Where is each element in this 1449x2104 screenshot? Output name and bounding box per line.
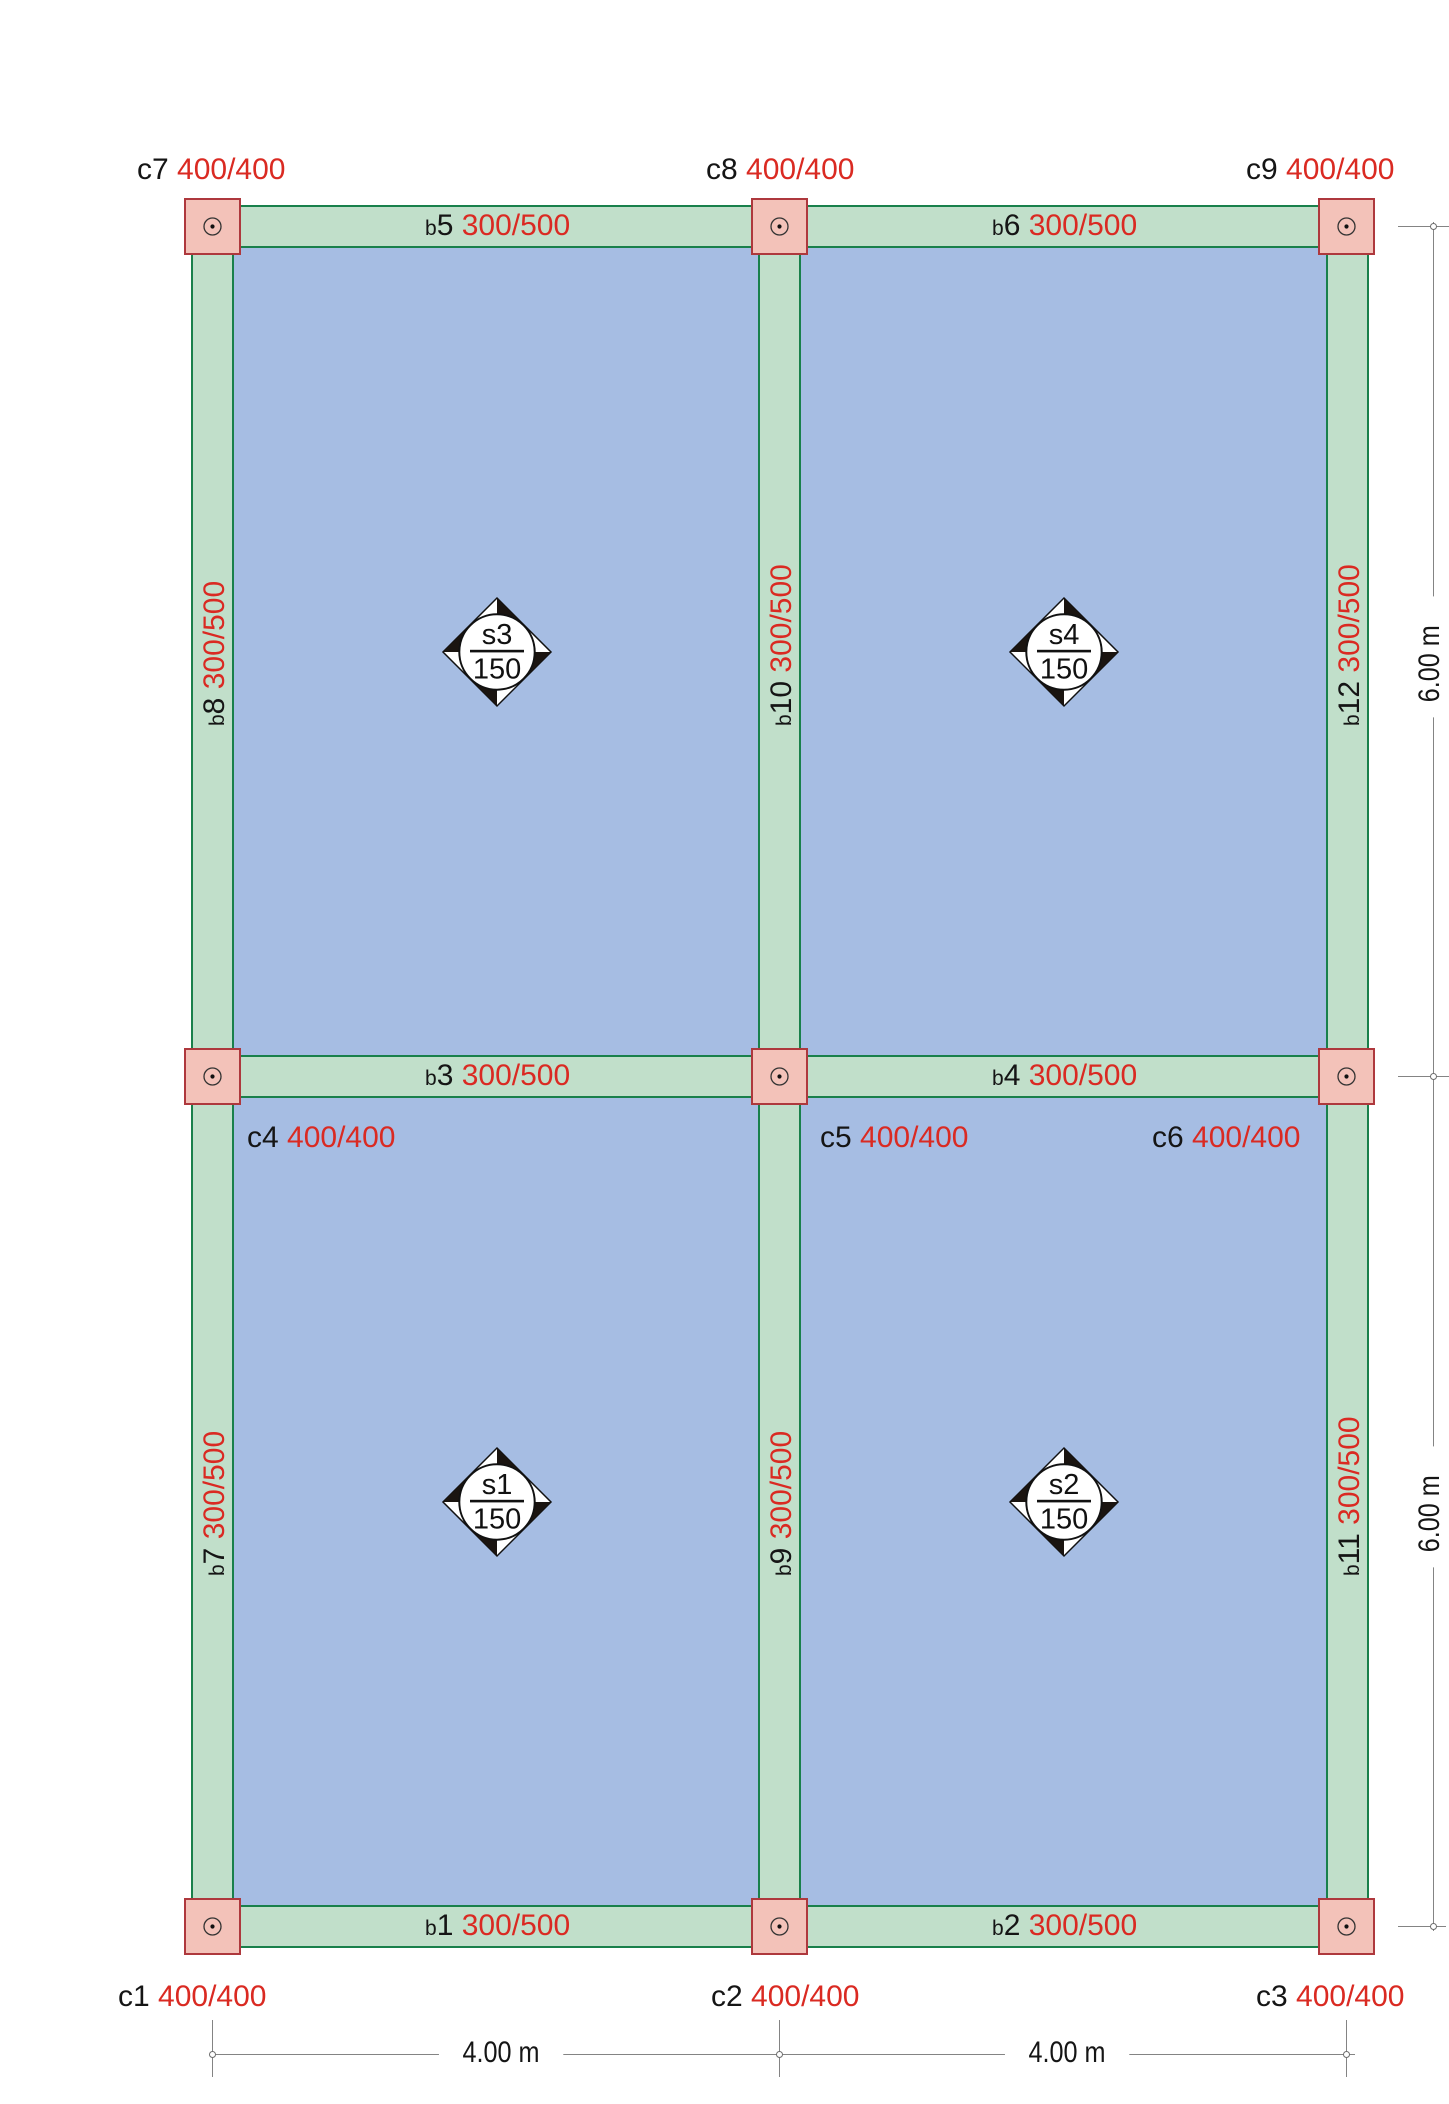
svg-text:150: 150 <box>1039 1503 1087 1535</box>
svg-text:150: 150 <box>1039 653 1087 685</box>
svg-text:s3: s3 <box>481 619 512 651</box>
svg-text:s2: s2 <box>1048 1469 1079 1501</box>
svg-text:150: 150 <box>472 653 520 685</box>
svg-text:s4: s4 <box>1048 619 1079 651</box>
svg-text:s1: s1 <box>481 1469 512 1501</box>
svg-text:150: 150 <box>472 1503 520 1535</box>
